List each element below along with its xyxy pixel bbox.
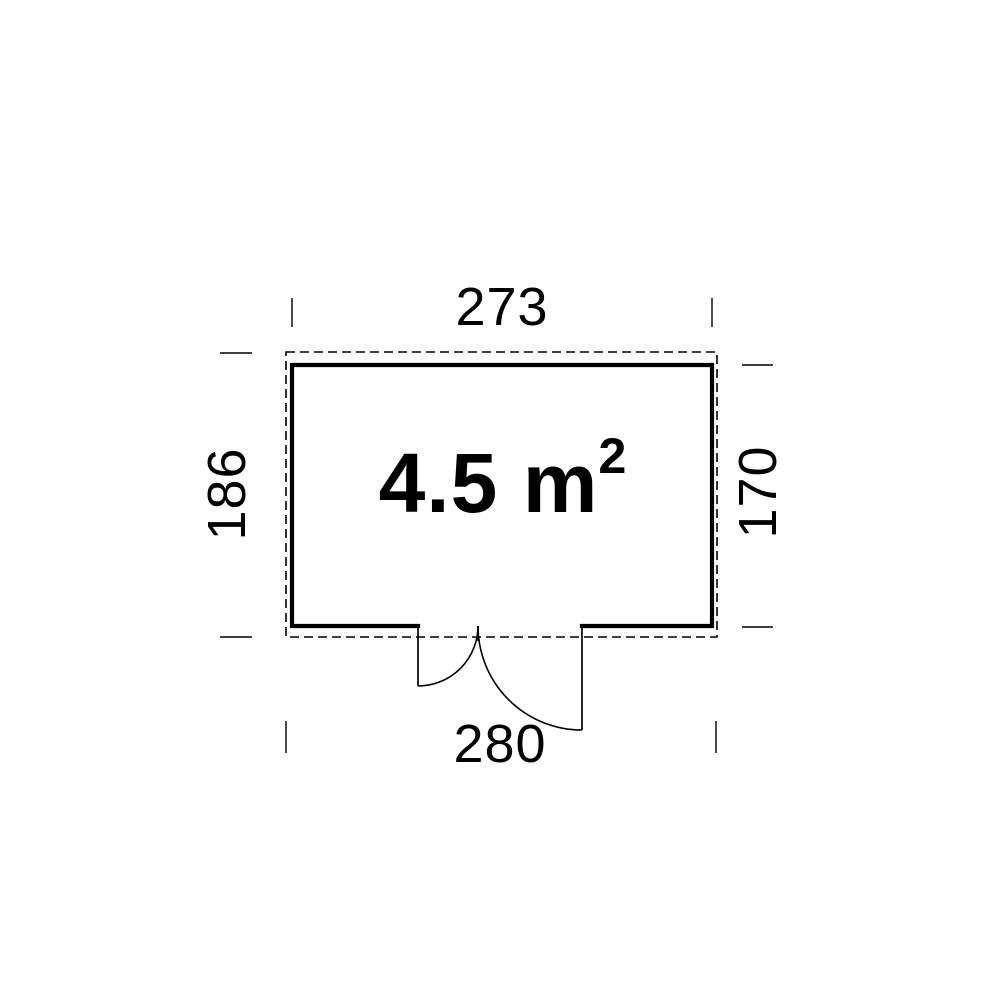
dimension-label-top: 273 (455, 280, 548, 334)
dimension-label-left: 186 (200, 447, 254, 540)
dimension-label-right: 170 (731, 445, 785, 538)
floor-plan-diagram: 273 280 186 170 4.5 m2 (0, 0, 1000, 1000)
area-value: 4.5 m (379, 436, 599, 530)
area-label: 4.5 m2 (379, 441, 628, 525)
area-exponent: 2 (598, 427, 627, 484)
door-swing-arc-left (418, 626, 478, 686)
dimension-label-bottom: 280 (453, 717, 546, 771)
